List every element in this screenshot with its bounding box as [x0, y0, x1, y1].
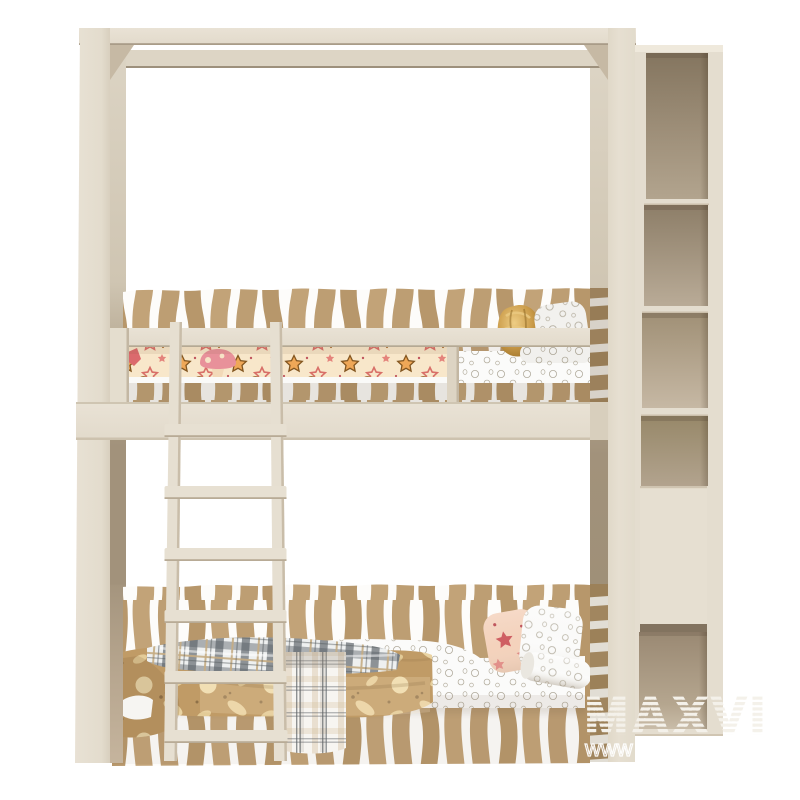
svg-text:www: www	[584, 736, 633, 761]
